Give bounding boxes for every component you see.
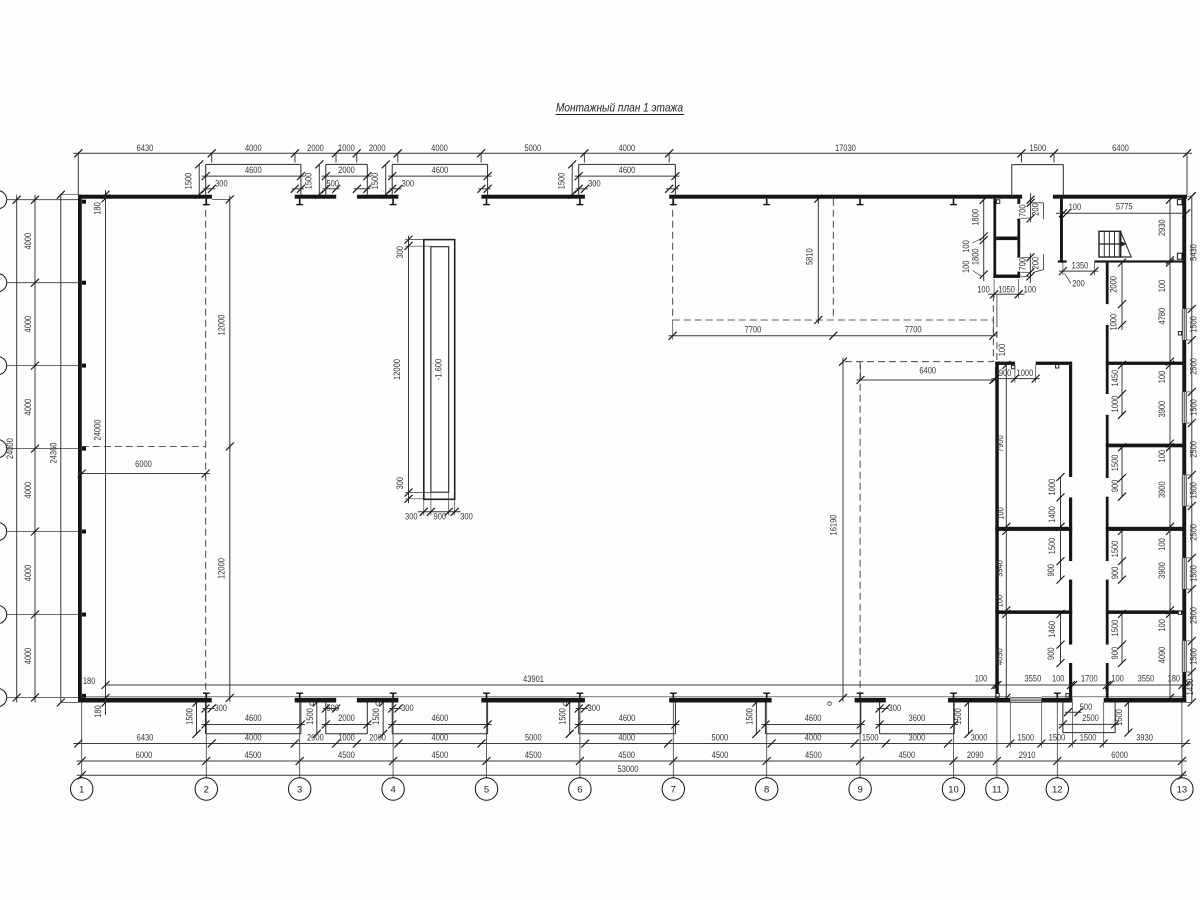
svg-text:4090: 4090	[1157, 647, 1167, 664]
svg-text:1500: 1500	[1017, 732, 1034, 742]
svg-text:3: 3	[297, 785, 302, 796]
svg-text:2500: 2500	[1189, 441, 1199, 458]
svg-text:180: 180	[83, 676, 96, 686]
svg-text:12000: 12000	[216, 558, 226, 579]
svg-text:4600: 4600	[619, 713, 636, 723]
svg-text:4000: 4000	[23, 399, 33, 416]
svg-text:4600: 4600	[432, 713, 449, 723]
svg-text:180: 180	[1168, 674, 1181, 684]
svg-text:3900: 3900	[1157, 481, 1167, 498]
svg-text:1500: 1500	[557, 173, 567, 190]
svg-text:1500: 1500	[1110, 541, 1120, 558]
svg-text:12000: 12000	[392, 359, 402, 380]
svg-text:4600: 4600	[619, 165, 636, 175]
svg-text:4000: 4000	[618, 732, 635, 742]
svg-text:100: 100	[1069, 202, 1082, 212]
svg-text:5000: 5000	[712, 732, 729, 742]
svg-text:6430: 6430	[137, 732, 154, 742]
svg-text:1700: 1700	[1081, 674, 1098, 684]
svg-text:9: 9	[857, 785, 862, 796]
svg-text:300: 300	[214, 703, 227, 713]
svg-text:1500: 1500	[1189, 482, 1199, 499]
svg-text:2000: 2000	[1109, 276, 1119, 293]
svg-text:300: 300	[215, 179, 228, 189]
svg-text:1500: 1500	[862, 732, 879, 742]
svg-text:4780: 4780	[1157, 308, 1167, 325]
svg-text:6000: 6000	[1111, 750, 1128, 760]
svg-text:4000: 4000	[23, 233, 33, 250]
svg-text:2: 2	[204, 785, 209, 796]
svg-text:180: 180	[93, 202, 103, 215]
svg-text:1500: 1500	[953, 708, 963, 725]
svg-text:2000: 2000	[338, 165, 355, 175]
svg-text:6000: 6000	[135, 459, 152, 469]
svg-text:1: 1	[79, 785, 84, 796]
svg-text:200: 200	[1030, 203, 1040, 216]
svg-text:1500: 1500	[1189, 316, 1199, 333]
svg-text:24000: 24000	[93, 419, 103, 440]
svg-text:4600: 4600	[805, 713, 822, 723]
svg-text:1000: 1000	[338, 143, 355, 153]
svg-text:900: 900	[1110, 567, 1120, 580]
svg-text:7700: 7700	[905, 324, 922, 334]
svg-text:5: 5	[484, 785, 489, 796]
svg-text:1500: 1500	[1114, 709, 1124, 726]
svg-text:2500: 2500	[1189, 524, 1199, 541]
svg-text:100: 100	[1024, 284, 1037, 294]
svg-text:1000: 1000	[1047, 479, 1057, 496]
svg-text:200: 200	[1030, 257, 1040, 270]
svg-text:1500: 1500	[1189, 648, 1199, 665]
svg-text:1500: 1500	[305, 708, 315, 725]
svg-text:700: 700	[1018, 204, 1028, 217]
svg-text:4500: 4500	[805, 750, 822, 760]
svg-text:500: 500	[326, 179, 339, 189]
svg-text:5810: 5810	[805, 248, 815, 265]
svg-text:100: 100	[1157, 619, 1167, 632]
svg-text:1500: 1500	[185, 708, 195, 725]
svg-text:4500: 4500	[245, 750, 262, 760]
svg-text:3550: 3550	[1138, 674, 1155, 684]
svg-text:1460: 1460	[1047, 621, 1057, 638]
svg-text:1350: 1350	[1072, 260, 1089, 270]
svg-text:24360: 24360	[49, 442, 59, 463]
svg-text:4000: 4000	[23, 565, 33, 582]
svg-text:6430: 6430	[137, 143, 154, 153]
svg-text:3600: 3600	[909, 713, 926, 723]
svg-text:4500: 4500	[898, 750, 915, 760]
svg-text:4000: 4000	[431, 143, 448, 153]
svg-text:100: 100	[1157, 280, 1167, 293]
svg-text:100: 100	[995, 507, 1005, 520]
svg-text:4500: 4500	[525, 750, 542, 760]
svg-text:300: 300	[401, 703, 414, 713]
svg-text:4600: 4600	[245, 713, 262, 723]
svg-text:300: 300	[395, 477, 405, 490]
svg-text:3550: 3550	[1025, 674, 1042, 684]
svg-text:10: 10	[948, 785, 959, 796]
svg-text:13: 13	[1177, 785, 1188, 796]
svg-text:6400: 6400	[1112, 143, 1129, 153]
svg-text:4000: 4000	[805, 732, 822, 742]
svg-text:180: 180	[93, 705, 103, 718]
svg-text:4600: 4600	[245, 165, 262, 175]
svg-text:5430: 5430	[1189, 244, 1199, 261]
svg-text:12: 12	[1052, 785, 1063, 796]
svg-text:100: 100	[1157, 371, 1167, 384]
svg-text:100: 100	[997, 344, 1007, 357]
svg-text:1000: 1000	[1017, 368, 1034, 378]
svg-text:1500: 1500	[1110, 620, 1120, 637]
svg-text:4000: 4000	[245, 143, 262, 153]
svg-text:100: 100	[995, 595, 1005, 608]
svg-text:1000: 1000	[1109, 314, 1119, 331]
svg-text:1000: 1000	[338, 732, 355, 742]
svg-text:1800: 1800	[970, 248, 980, 265]
svg-text:300: 300	[460, 511, 473, 521]
svg-text:8: 8	[764, 785, 769, 796]
svg-text:100: 100	[961, 260, 971, 273]
svg-text:53000: 53000	[618, 764, 639, 774]
svg-text:1500: 1500	[1189, 399, 1199, 416]
svg-text:1500: 1500	[1080, 732, 1097, 742]
svg-text:900: 900	[1046, 647, 1056, 660]
svg-text:4000: 4000	[618, 143, 635, 153]
svg-text:1050: 1050	[998, 284, 1015, 294]
svg-text:2500: 2500	[1189, 607, 1199, 624]
svg-text:-1.600: -1.600	[433, 359, 443, 381]
svg-text:5000: 5000	[524, 143, 541, 153]
svg-text:6000: 6000	[136, 750, 153, 760]
svg-text:300: 300	[405, 511, 418, 521]
svg-text:5775: 5775	[1116, 202, 1133, 212]
svg-text:100: 100	[1111, 674, 1124, 684]
svg-text:2090: 2090	[967, 750, 984, 760]
svg-text:2910: 2910	[1019, 750, 1036, 760]
svg-text:4000: 4000	[23, 482, 33, 499]
svg-text:700: 700	[1017, 258, 1027, 271]
svg-text:100: 100	[975, 674, 988, 684]
svg-text:7700: 7700	[745, 324, 762, 334]
svg-text:7900: 7900	[995, 435, 1005, 452]
svg-text:3930: 3930	[1136, 732, 1153, 742]
svg-text:1500: 1500	[1189, 565, 1199, 582]
svg-text:2000: 2000	[307, 732, 324, 742]
svg-text:1500: 1500	[304, 173, 314, 190]
svg-text:Монтажный план 1 этажа: Монтажный план 1 этажа	[556, 101, 683, 115]
svg-text:17030: 17030	[835, 143, 856, 153]
svg-text:2500: 2500	[1189, 358, 1199, 375]
svg-text:4500: 4500	[712, 750, 729, 760]
svg-text:2000: 2000	[338, 713, 355, 723]
svg-text:1500: 1500	[371, 708, 381, 725]
svg-text:1500: 1500	[370, 173, 380, 190]
svg-text:300: 300	[588, 703, 601, 713]
svg-text:900: 900	[1046, 564, 1056, 577]
svg-text:100: 100	[1157, 538, 1167, 551]
svg-text:2000: 2000	[369, 143, 386, 153]
svg-text:3900: 3900	[1157, 401, 1167, 418]
svg-text:1500: 1500	[1110, 454, 1120, 471]
svg-text:100: 100	[961, 240, 971, 253]
svg-text:100: 100	[1157, 450, 1167, 463]
svg-text:5000: 5000	[525, 732, 542, 742]
svg-text:43901: 43901	[523, 674, 544, 684]
svg-text:24000: 24000	[5, 438, 15, 459]
svg-text:4500: 4500	[431, 750, 448, 760]
svg-text:4000: 4000	[23, 316, 33, 333]
svg-text:2000: 2000	[307, 143, 324, 153]
svg-text:200: 200	[1072, 279, 1085, 289]
svg-text:300: 300	[588, 179, 601, 189]
svg-text:6400: 6400	[919, 365, 936, 375]
svg-text:300: 300	[889, 703, 902, 713]
svg-text:1500: 1500	[184, 173, 194, 190]
svg-text:300: 300	[395, 246, 405, 259]
svg-text:11: 11	[992, 785, 1002, 796]
svg-text:1500: 1500	[558, 708, 568, 725]
svg-text:4: 4	[390, 785, 395, 796]
svg-text:900: 900	[434, 511, 447, 521]
svg-text:300: 300	[402, 179, 415, 189]
svg-text:100: 100	[977, 284, 990, 294]
svg-text:4500: 4500	[338, 750, 355, 760]
svg-text:900: 900	[1110, 647, 1120, 660]
svg-text:4050: 4050	[995, 648, 1005, 665]
svg-text:3000: 3000	[909, 732, 926, 742]
svg-text:3000: 3000	[971, 732, 988, 742]
svg-text:2500: 2500	[1082, 713, 1099, 723]
svg-text:1500: 1500	[1047, 538, 1057, 555]
svg-text:6: 6	[577, 785, 582, 796]
svg-text:16190: 16190	[829, 514, 839, 535]
svg-text:1450: 1450	[1110, 370, 1120, 387]
svg-text:1000: 1000	[1110, 396, 1120, 413]
svg-text:4000: 4000	[245, 732, 262, 742]
svg-text:4000: 4000	[23, 648, 33, 665]
svg-text:500: 500	[326, 703, 339, 713]
svg-text:900: 900	[999, 368, 1012, 378]
svg-text:1800: 1800	[970, 209, 980, 226]
svg-text:4600: 4600	[432, 165, 449, 175]
svg-text:1500: 1500	[1029, 143, 1046, 153]
svg-text:12000: 12000	[216, 314, 226, 335]
svg-text:2930: 2930	[1157, 219, 1167, 236]
svg-text:1500: 1500	[744, 708, 754, 725]
svg-text:100: 100	[1052, 674, 1065, 684]
svg-text:2000: 2000	[369, 732, 386, 742]
svg-text:500: 500	[1080, 702, 1093, 712]
svg-text:4500: 4500	[618, 750, 635, 760]
svg-text:4000: 4000	[432, 732, 449, 742]
svg-text:1400: 1400	[1047, 506, 1057, 523]
svg-text:7: 7	[671, 785, 676, 796]
svg-text:900: 900	[1110, 480, 1120, 493]
svg-text:3900: 3900	[1157, 562, 1167, 579]
svg-text:3940: 3940	[995, 560, 1005, 577]
